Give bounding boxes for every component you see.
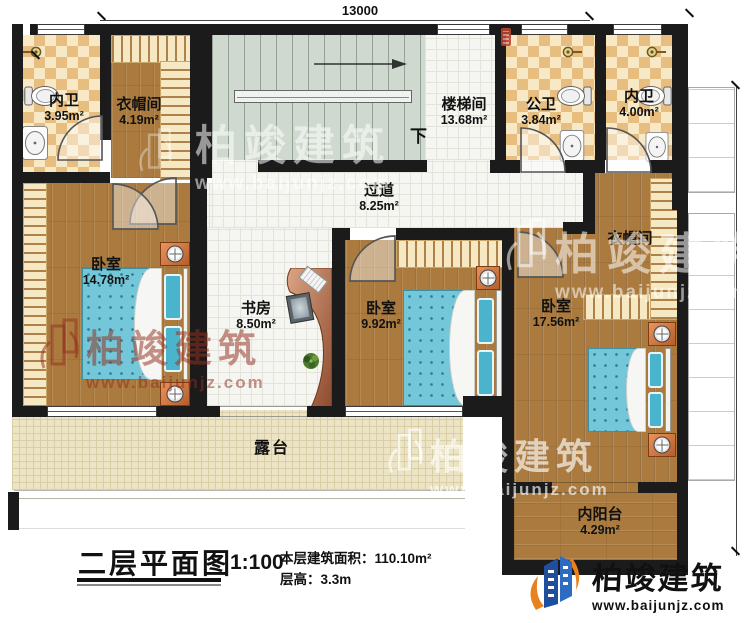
lamp-icon [654,326,671,343]
room-label-cloakroom-left: 衣帽间 4.19m² [116,96,161,128]
door-swing-arc [113,184,158,229]
room-label-public-bath: 公卫 3.84m² [521,96,561,128]
closet-hanger-strip [583,294,660,320]
room-label-terrace: 露台 [254,440,290,458]
baijun-mini-mark-icon [501,28,511,46]
plan-title: 二层平面图 [78,542,233,582]
wall-segment [672,24,688,210]
closet-hanger-strip [111,35,192,63]
wall-segment [12,406,47,417]
door-swing-arc [350,236,395,281]
window [521,24,568,35]
dimension-top: 13000 [330,3,390,18]
door-swing-arc [607,128,651,172]
plan-scale: 1:100 [230,551,284,575]
room-label-inner-bath-right: 内卫 4.00m² [619,88,659,120]
baijun-watermark-icon [138,128,174,176]
baijun-logo: 柏竣建筑 www.baijunjz.com [528,552,725,614]
room-label-corridor: 过道 8.25m² [359,182,399,214]
window-glass-line [522,29,567,30]
wall-segment [490,160,520,173]
nightstand [160,242,190,266]
window [437,24,490,35]
room-label-bedroom-right: 卧室 17.56m² [533,298,580,330]
baijun-logo-icon [528,552,584,614]
plan-floor-height: 层高：3.3m [280,568,351,588]
closet-hanger-strip [396,240,504,268]
window [613,24,662,35]
floor-plan-canvas: 下 [0,0,750,623]
plan-floor-area: 本层建筑面积：110.10m² [280,547,432,567]
wall-segment [583,173,595,234]
lamp-icon [480,270,497,287]
window-glass-line [438,29,489,30]
lamp-icon [167,386,184,403]
nightstand [160,382,190,406]
nightstand [648,322,676,346]
wall-segment [190,178,207,417]
wall-segment [307,406,347,417]
baijun-logo-brand: 柏竣建筑 [591,553,726,598]
wall-segment [22,172,110,183]
room-label-study: 书房 8.50m² [236,300,276,332]
wall-segment [650,160,688,173]
title-underline [77,578,221,582]
window [37,24,85,35]
dimension-line-right [736,86,737,556]
wall-segment [638,482,677,493]
wall-segment [157,406,220,417]
wall-segment [12,24,23,417]
wall-segment [396,228,514,240]
title-underline [77,584,221,586]
wall-segment [190,35,212,178]
door-threshold [220,406,307,417]
window-glass-line [614,29,661,30]
lamp-icon [167,246,184,263]
wall-segment [495,35,506,173]
nightstand [476,266,500,290]
exterior-ledge [688,87,735,193]
door-threshold [552,482,638,493]
wall-segment [258,160,427,172]
wall-segment [8,492,19,530]
wall-segment [595,35,606,160]
wall-segment [463,396,502,417]
room-label-bedroom-left: 卧室 14.78m² [83,256,130,288]
door-swing-arc [521,128,565,172]
wall-segment [514,482,552,493]
wall-segment [332,240,345,406]
window-glass-line [38,29,84,30]
exterior-ledge [688,213,735,481]
closet-hanger-strip [23,183,47,408]
dimension-line-top [100,20,590,21]
room-label-bedroom-middle: 卧室 9.92m² [361,300,401,332]
wall-segment [565,160,605,173]
window [47,406,157,417]
wall-segment [677,204,688,575]
nightstand [648,433,676,457]
room-label-inner-bath-left: 内卫 3.95m² [44,92,84,124]
wall-segment [332,228,350,240]
lamp-icon [654,437,671,454]
room-label-cloakroom-right: 衣帽间 [607,230,652,247]
window [345,406,463,417]
window-glass-line [48,411,156,412]
room-label-stairwell: 楼梯间 13.68m² [441,96,488,128]
baijun-logo-url: www.baijunjz.com [592,598,725,613]
window-glass-line [346,411,462,412]
door-swing-arc [518,232,563,277]
wall-segment [30,24,688,35]
room-label-inner-balcony: 内阳台 4.29m² [577,506,622,538]
wall-segment [502,228,514,562]
